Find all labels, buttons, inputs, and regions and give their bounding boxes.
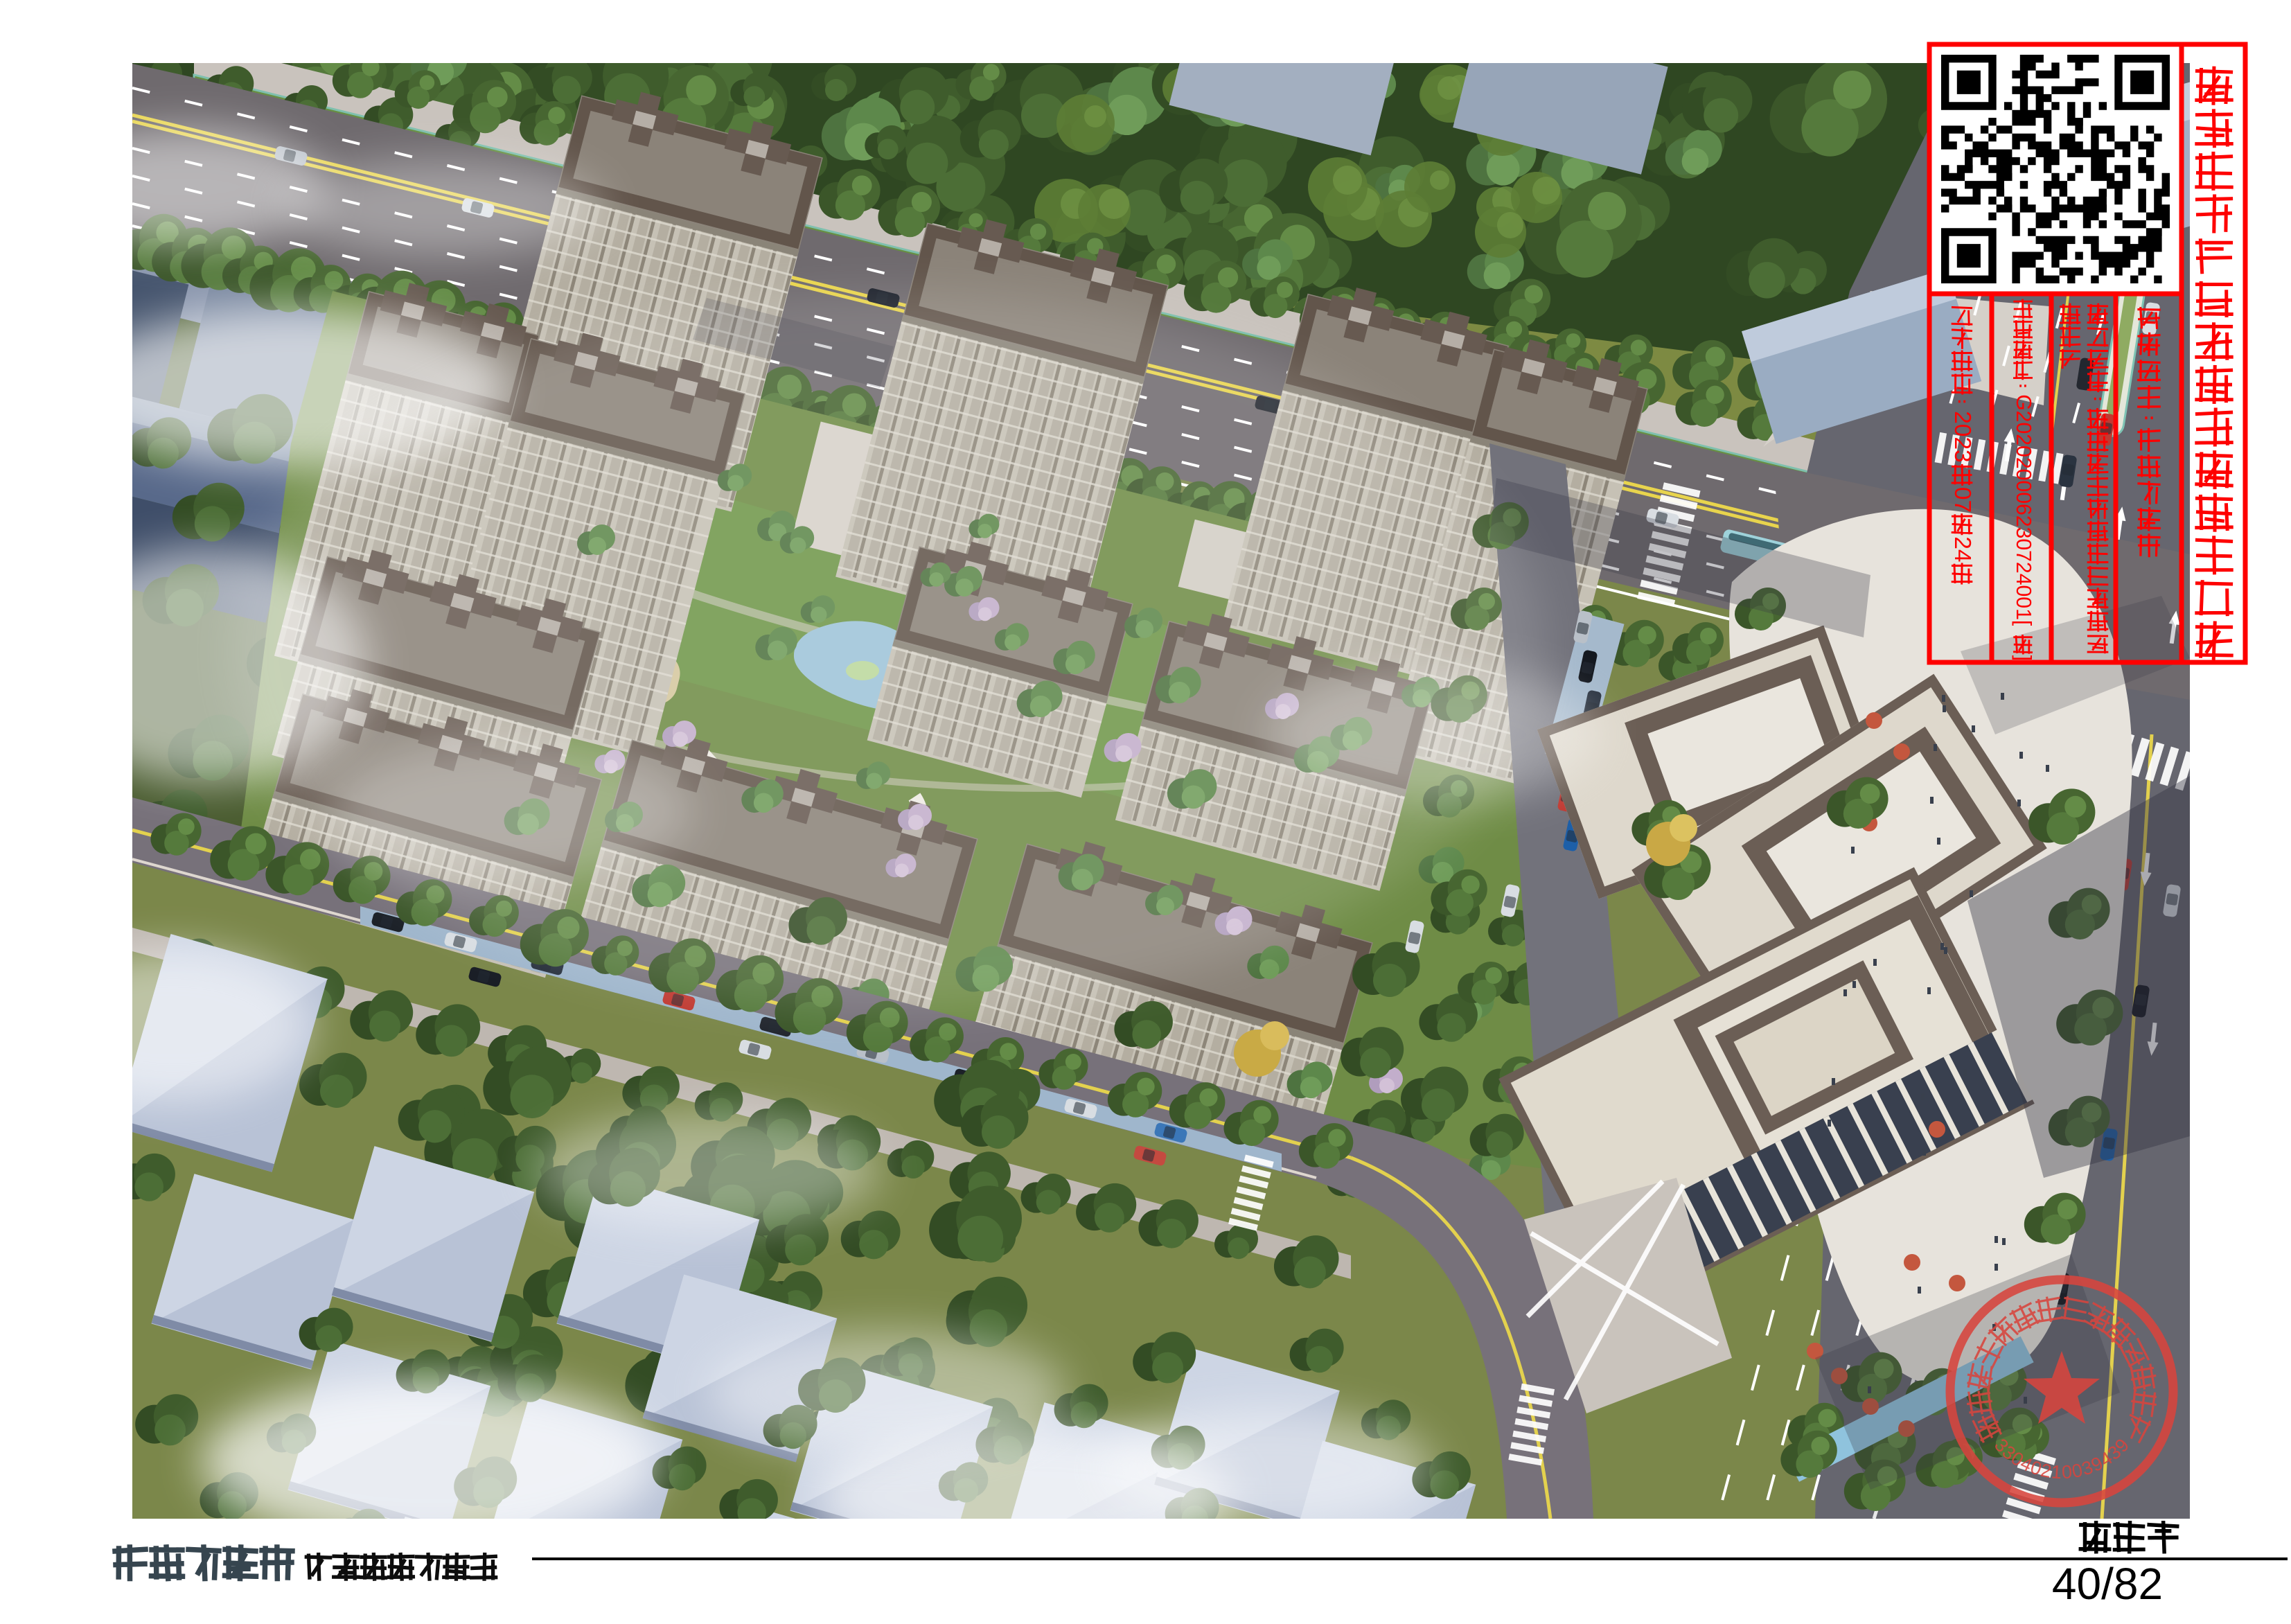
svg-text:]: ] — [2012, 655, 2035, 661]
svg-text:40/82: 40/82 — [2052, 1559, 2163, 1609]
svg-text:G202020006230724001[: G202020006230724001[ — [2012, 394, 2035, 626]
svg-text:24: 24 — [1949, 536, 1975, 562]
svg-text:07: 07 — [1949, 487, 1975, 513]
svg-text:2023: 2023 — [1949, 411, 1975, 463]
